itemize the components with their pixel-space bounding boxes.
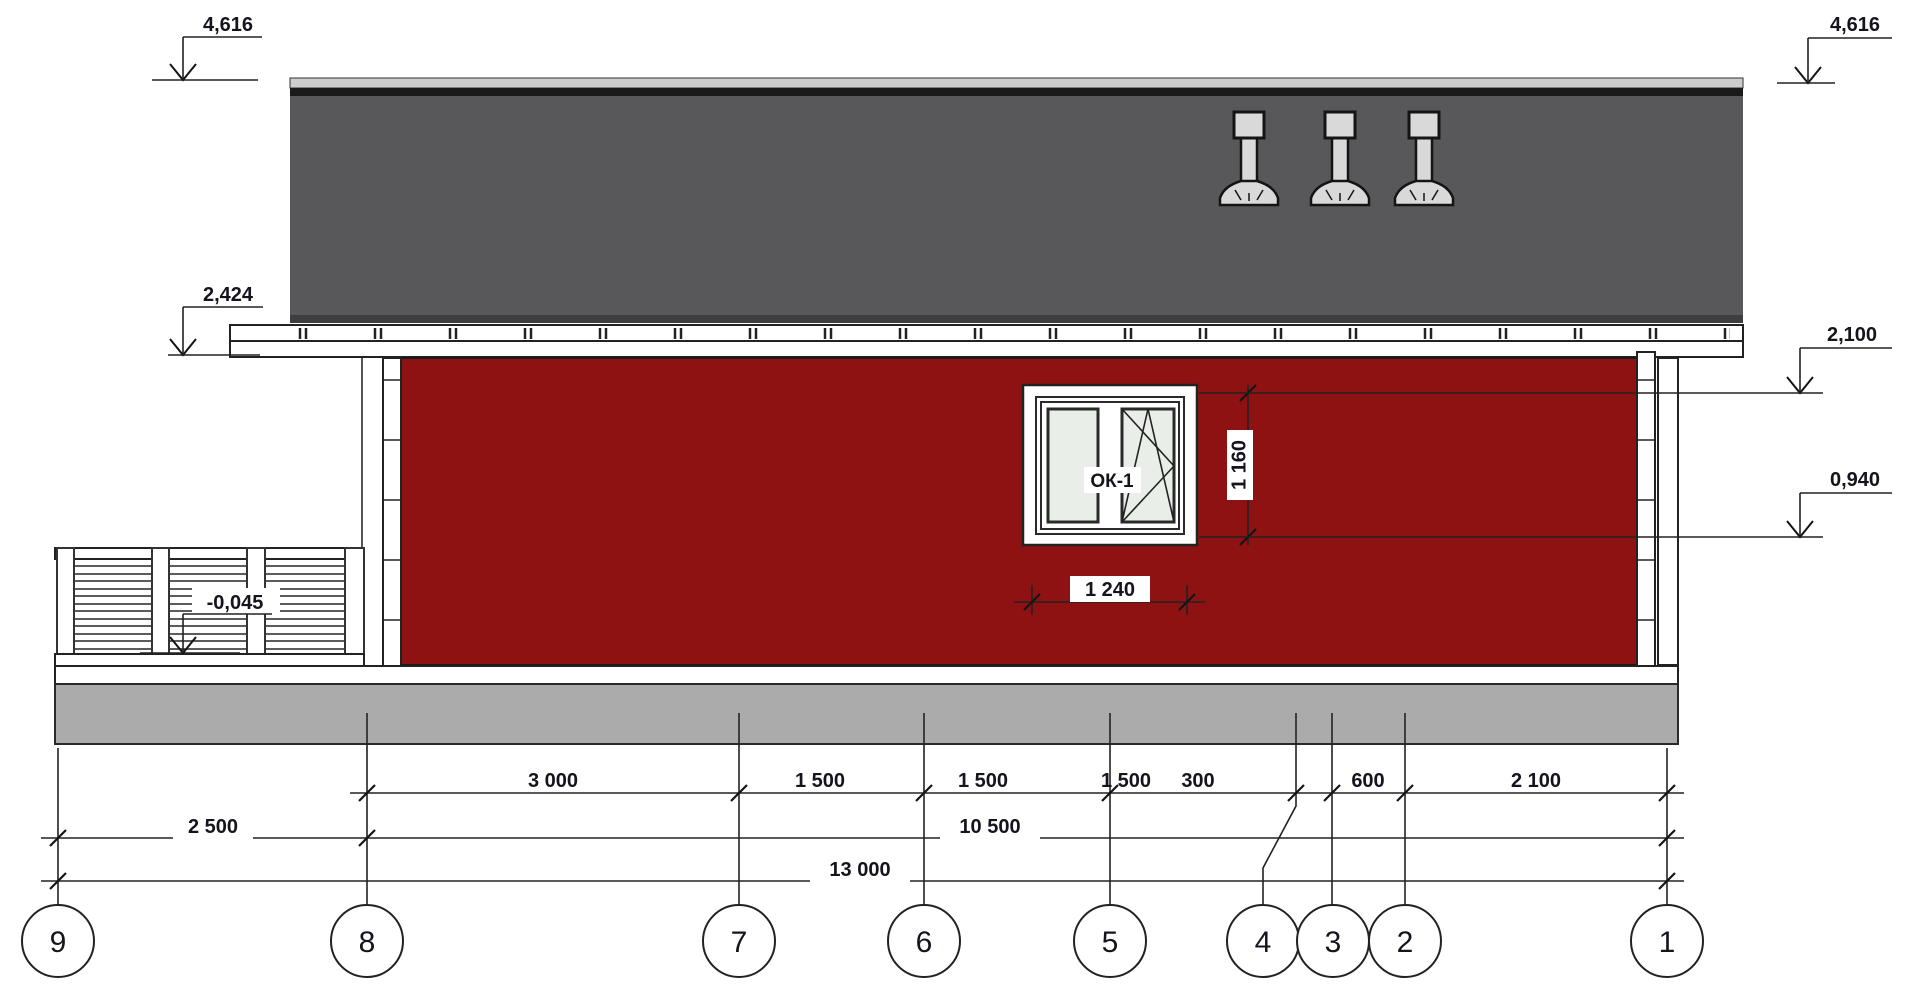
elevation-drawing: ОК-1 1 160 1 240 4,616 4,616: [0, 0, 1920, 991]
dim-label: 13 000: [829, 859, 890, 881]
fascia-lower-board: [230, 341, 1743, 357]
roof-bottom-edge: [290, 315, 1743, 323]
dim-label: 300: [1181, 770, 1214, 792]
vent-pipes: [1220, 112, 1453, 205]
axis-number: 6: [916, 926, 933, 959]
foundation-strip: [55, 684, 1678, 744]
window-height-label: 1 160: [1228, 440, 1250, 490]
level-mark-roof-left: 4,616: [152, 14, 262, 80]
axis-number: 2: [1397, 926, 1414, 959]
roof-slope-face: [290, 96, 1743, 315]
axis-number: 5: [1102, 926, 1119, 959]
level-label: 4,616: [1830, 14, 1880, 36]
axis-number: 7: [731, 926, 748, 959]
roof-top-light-strip: [290, 78, 1743, 88]
right-corner-board: [1658, 358, 1678, 665]
axis-number: 1: [1659, 926, 1676, 959]
window-tag: ОК-1: [1090, 471, 1134, 492]
level-label: 2,424: [203, 284, 254, 306]
dim-label: 600: [1351, 770, 1384, 792]
siding-wall: [400, 358, 1640, 665]
level-mark-roof-right: 4,616: [1777, 14, 1892, 83]
window-ok1: ОК-1: [1023, 385, 1197, 545]
dimension-row-2: 2 500 10 500: [41, 815, 1684, 846]
eave-fascia: [230, 325, 1743, 357]
dimension-row-3: 13 000: [41, 858, 1684, 889]
dim-label: 2 100: [1511, 770, 1561, 792]
window-pane-fixed: [1048, 409, 1098, 522]
dim-label: 2 500: [188, 816, 238, 838]
dim-label: 10 500: [959, 816, 1020, 838]
porch-deck-edge: [55, 654, 364, 666]
grid-axis-bubbles: 9 8 7 6 5 4 3 2 1: [22, 905, 1703, 977]
dimension-row-1: 3 000 1 500 1 500 1 500 300 600 2 100: [350, 770, 1684, 801]
dim-label: 1 500: [1101, 770, 1151, 792]
window-pane-operable: [1122, 409, 1174, 522]
rail-top: [55, 548, 364, 559]
axis-number: 3: [1325, 926, 1342, 959]
dim-label: 3 000: [528, 770, 578, 792]
level-label: 2,100: [1827, 324, 1877, 346]
level-label: 0,940: [1830, 469, 1880, 491]
level-label: -0,045: [207, 592, 264, 614]
window-width-label: 1 240: [1085, 579, 1135, 601]
gutter-brackets: [298, 328, 1730, 339]
axis-number: 8: [359, 926, 376, 959]
roof-ridge-line: [290, 88, 1743, 96]
plinth-band: [55, 666, 1678, 684]
dim-label: 1 500: [795, 770, 845, 792]
roof: [290, 78, 1743, 323]
dim-label: 1 500: [958, 770, 1008, 792]
axis-number: 9: [50, 926, 67, 959]
level-label: 4,616: [203, 14, 253, 36]
axis-number: 4: [1255, 926, 1272, 959]
